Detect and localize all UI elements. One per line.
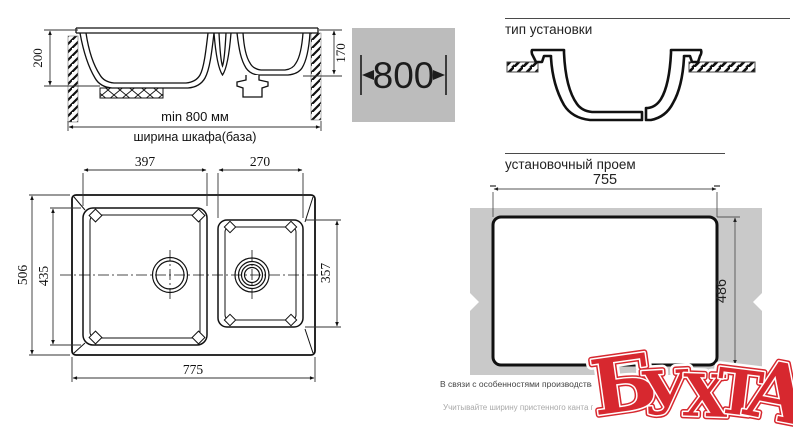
dim-bowl2-width-label: 270 [250,154,271,169]
logo-letters: Б У Х Т А [586,336,793,441]
dim-overall-width-label: 775 [183,362,204,377]
wall-trim-note: Учитывайте ширину пристенного канта при … [443,403,593,412]
production-note: В связи с особенностями производства выр… [440,379,592,389]
dim-overall-depth-label: 506 [15,265,30,286]
dim-depth-main-label: 200 [30,48,45,68]
cabinet-width-label: ширина шкафа(база) [134,130,257,144]
logo-letter: А [737,340,793,441]
min-width-label: min 800 мм [161,109,229,124]
dim-bowl1-depth-label: 435 [36,266,51,287]
dim-cutout-width-label: 755 [593,172,617,188]
badge-800-graphic: 800 [352,28,455,122]
installation-type-header: тип установки [505,18,790,37]
countertop-sections [507,62,755,72]
top-view-drawing: 397 270 506 435 357 775 [8,150,353,398]
centerlines [60,250,326,300]
top-view-dimensions [29,170,341,382]
cabinet-width-badge: 800 [352,28,455,122]
dim-cutout-depth-label: 486 [714,279,730,303]
front-section-drawing: 200 170 min 800 мм ширина шкафа(база) [0,0,352,150]
sink-section-outline [76,28,318,98]
installation-type-drawing [505,40,793,148]
buhta-logo-watermark: Б У Х Т А Б У Х Т А Б У Х Т А [586,328,793,441]
sink-rim-profile [532,50,702,120]
dim-depth-second-label: 170 [333,43,348,63]
dim-bowl2-depth-label: 357 [318,263,333,284]
badge-width-value: 800 [373,55,435,96]
sink-top-outline [60,195,326,355]
sink-installation-diagram: 200 170 min 800 мм ширина шкафа(база) 80… [0,0,793,441]
dim-bowl1-width-label: 397 [135,154,156,169]
arrow-right-icon [433,70,445,80]
